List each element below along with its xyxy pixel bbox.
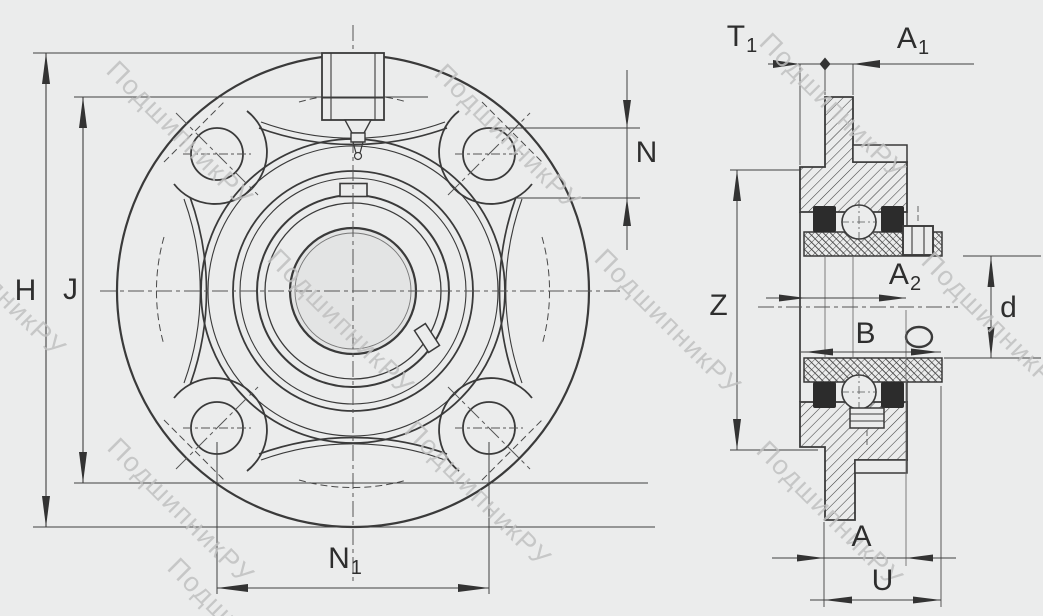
dim-d	[944, 256, 1041, 358]
housing-top-chamfer-face	[853, 145, 907, 162]
housing-bottom-step-face	[855, 460, 907, 473]
dim-N	[495, 70, 640, 250]
dim-label-A1: A1	[897, 24, 929, 58]
dim-label-A: A	[851, 522, 872, 552]
dim-label-A2: A2	[889, 260, 921, 294]
side-section-view	[730, 58, 1041, 608]
front-view	[33, 25, 655, 594]
dim-label-U: U	[872, 566, 895, 596]
grease-nipple	[345, 120, 371, 133]
drawing-canvas	[0, 0, 1043, 616]
dim-label-d: d	[1000, 293, 1018, 323]
setscrew-hole	[906, 327, 932, 347]
dim-label-N1: N1	[328, 544, 362, 578]
dim-A2	[766, 295, 906, 302]
dim-label-Z: Z	[709, 291, 728, 321]
sleeve-section-bottom	[804, 358, 942, 382]
drawing-page: ПодшипникРУПодшипникРУПодшипникРУПодшипн…	[0, 0, 1043, 616]
dim-label-T1: T1	[727, 22, 757, 56]
dim-label-J: J	[63, 275, 79, 305]
dim-label-B: B	[855, 319, 876, 349]
dim-label-N: N	[636, 138, 659, 168]
dim-label-H: H	[15, 276, 38, 306]
